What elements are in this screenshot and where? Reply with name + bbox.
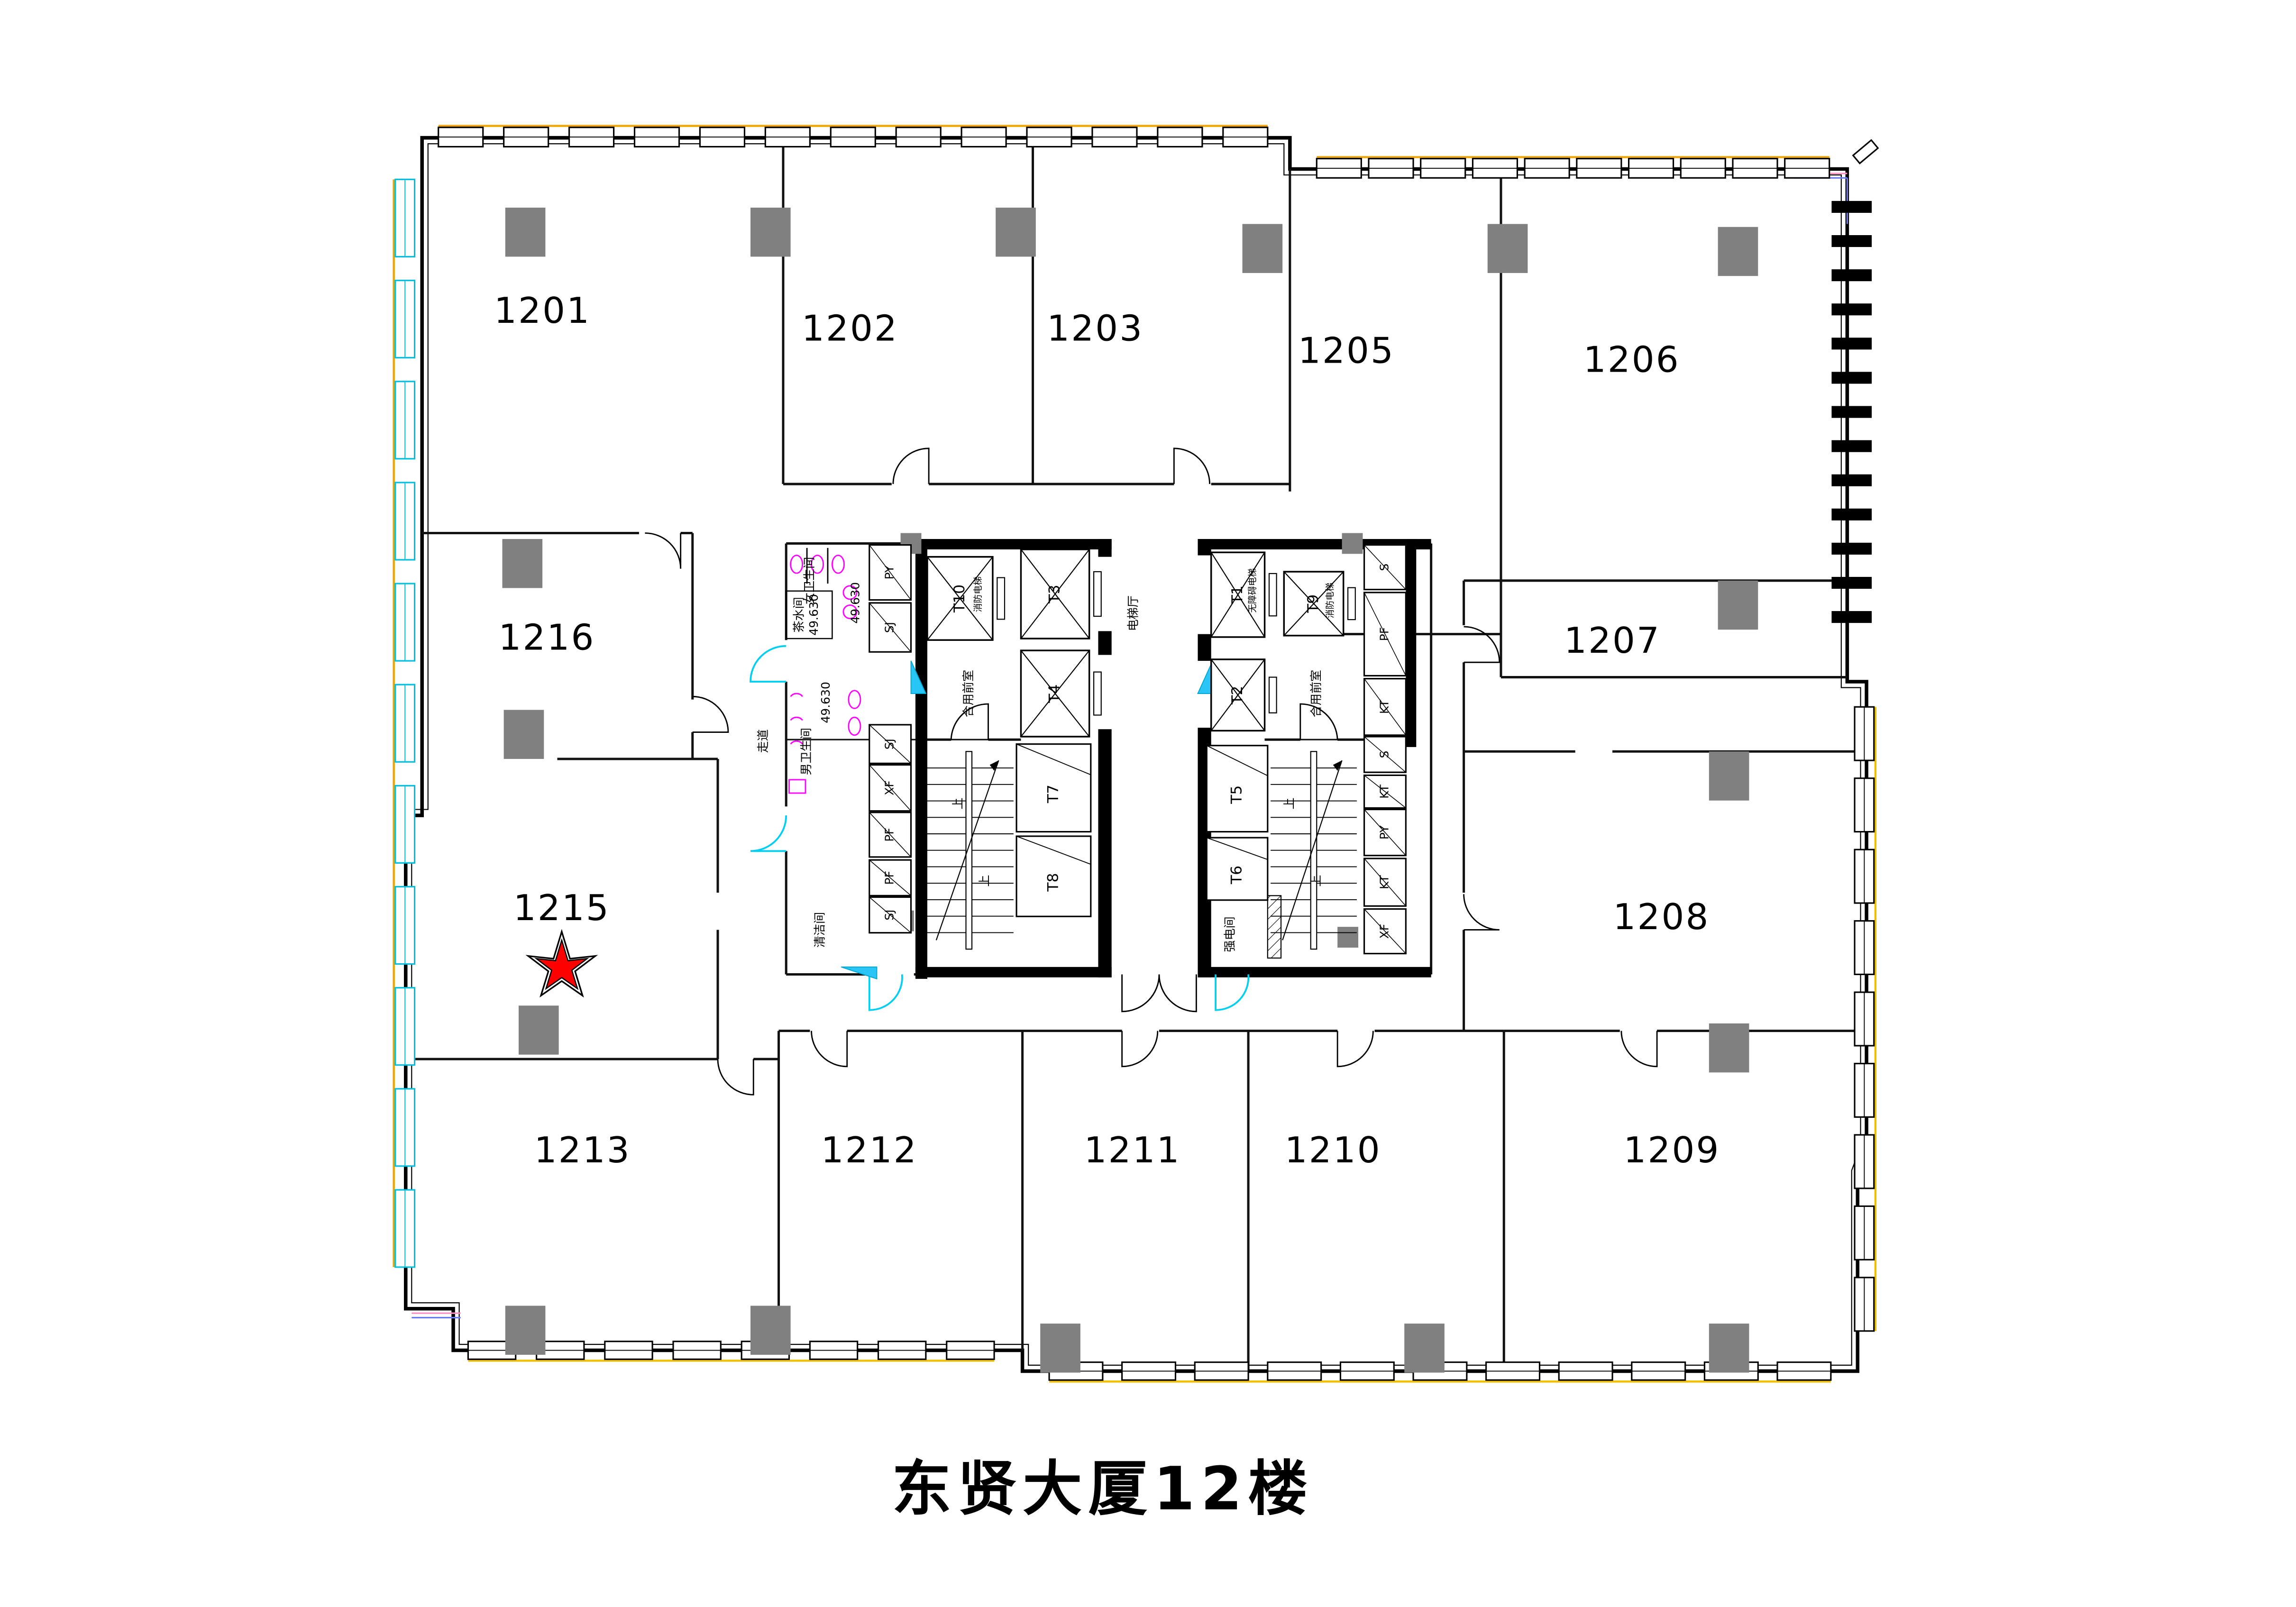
plan-text: 走道 <box>756 729 770 753</box>
shaft-KT: KT <box>1364 858 1406 906</box>
plan-text: 上 <box>1309 875 1323 886</box>
structural-column <box>996 208 1036 256</box>
plan-text: 茶水间 <box>792 597 805 632</box>
plan-text: 清洁间 <box>813 912 826 948</box>
shaft-label: PF <box>883 871 896 885</box>
window-icon <box>1832 270 1871 281</box>
plan-text: 49.630 <box>819 682 832 723</box>
elevator-T1: T1无障碍电梯 <box>1211 552 1277 637</box>
structural-column <box>750 208 791 256</box>
door-1212 <box>812 1031 847 1067</box>
window-icon <box>1832 441 1871 451</box>
floor-plan-canvas: PYSJSJXFPFPFSJSPFKTSKTPYKTXF T10消防电梯T3T4… <box>0 0 2296 1607</box>
structural-column <box>1040 1324 1080 1372</box>
shaft-label: PF <box>883 828 896 842</box>
door-1203 <box>1174 448 1209 484</box>
door-1209 <box>1621 1031 1657 1067</box>
room-label-1206: 1206 <box>1583 339 1680 381</box>
window-icon <box>1832 304 1871 315</box>
shaft-PY: PY <box>869 545 911 600</box>
room-label-1215: 1215 <box>513 887 610 929</box>
room-label-1201: 1201 <box>494 290 591 331</box>
window-icon <box>1832 338 1871 349</box>
room-label-1203: 1203 <box>1047 308 1143 349</box>
plan-text: 强电间 <box>1223 916 1236 952</box>
structural-column <box>1488 224 1528 273</box>
counterweight <box>1269 574 1277 616</box>
room-label-1208: 1208 <box>1613 896 1710 938</box>
door-hall-right-leaf <box>1159 974 1196 1011</box>
plan-text: 上 <box>978 875 991 886</box>
shaft-label: PY <box>883 565 896 580</box>
structural-column <box>1243 224 1283 273</box>
shaft-label: PF <box>1377 627 1391 641</box>
urinal-icon <box>791 694 803 696</box>
elevator-note: 消防电梯 <box>1325 583 1336 618</box>
door-1216 <box>645 533 680 568</box>
stair-rail <box>966 751 972 949</box>
structural-column <box>505 208 546 256</box>
structural-column <box>1342 533 1363 554</box>
shaft-label: KT <box>1377 875 1391 889</box>
elevator-note: 消防电梯 <box>973 576 983 612</box>
structural-column <box>519 1005 559 1054</box>
door-corridor-1216 <box>693 696 728 732</box>
shaft-label: XF <box>883 780 896 795</box>
shaft-SJ: SJ <box>869 897 911 932</box>
shaft-KT: KT <box>1364 679 1406 735</box>
shaft-label: PY <box>1377 825 1391 840</box>
door-wc-women <box>750 646 786 682</box>
plan-text: 49.630 <box>849 582 862 624</box>
room-label-1212: 1212 <box>821 1129 918 1171</box>
shaft-S: S <box>1364 737 1406 772</box>
elevator-label: T2 <box>1229 686 1246 705</box>
elevator-T4: T4 <box>1021 650 1101 737</box>
structural-column <box>1337 927 1358 948</box>
stairwell-treads <box>1271 751 1357 949</box>
plan-text: 合用前室 <box>1309 670 1323 717</box>
room-label-1205: 1205 <box>1298 330 1395 372</box>
door-core-right-south <box>1216 974 1248 1010</box>
structural-column <box>1709 751 1749 800</box>
north-marker <box>1853 140 1878 164</box>
elevator-T2: T2 <box>1211 659 1277 730</box>
room-label-1210: 1210 <box>1285 1129 1381 1171</box>
elevator-label: T9 <box>1305 594 1322 613</box>
mop-sink-icon <box>789 780 805 793</box>
counterweight <box>1094 672 1101 715</box>
counterweight <box>1348 588 1355 620</box>
room-label-1209: 1209 <box>1623 1129 1720 1171</box>
structural-column <box>1709 1324 1749 1372</box>
shaft-label: S <box>1377 751 1391 758</box>
door-core-left-south <box>869 974 902 1010</box>
column-layer <box>503 208 1758 1373</box>
star-marker <box>528 931 595 995</box>
elevator-T10: T10消防电梯 <box>927 557 1005 640</box>
shaft-SJ: SJ <box>869 603 911 652</box>
toilet-icon <box>849 691 860 709</box>
toilet-icon <box>791 556 803 574</box>
structural-column <box>1404 1324 1445 1372</box>
window-icon <box>1832 612 1871 622</box>
stair-label: T6 <box>1228 866 1245 885</box>
door-1213 <box>718 1059 753 1095</box>
doors-black <box>645 448 1657 1095</box>
east-band <box>1855 707 1875 1331</box>
window-icon <box>1832 543 1871 554</box>
door-1207 <box>1464 627 1500 662</box>
shaft-PF: PF <box>1364 593 1406 676</box>
stair-T7: T7 <box>1016 744 1091 832</box>
elevator-T9: T9消防电梯 <box>1284 572 1355 636</box>
window-icon <box>1832 407 1871 417</box>
shaft-label: KT <box>1377 700 1391 714</box>
door-1208 <box>1464 894 1500 930</box>
door-1211 <box>1122 1031 1158 1067</box>
window-icon <box>1832 201 1871 212</box>
window-icon <box>1832 373 1871 383</box>
window-icon <box>1832 236 1871 247</box>
room-label-1202: 1202 <box>802 308 898 349</box>
shaft-XF: XF <box>1364 909 1406 954</box>
stair-label: T5 <box>1228 785 1245 804</box>
shaft-label: SJ <box>883 909 896 920</box>
shaft-label: KT <box>1377 784 1391 798</box>
stair-rail <box>1311 751 1317 949</box>
stair-layer: T7T8T5T6 <box>924 744 1357 950</box>
door-wc-men <box>750 815 786 851</box>
elevator-note: 无障碍电梯 <box>1247 568 1258 613</box>
plan-text: 上 <box>951 797 965 809</box>
door-1210 <box>1337 1031 1373 1067</box>
room-label-1213: 1213 <box>534 1129 631 1171</box>
shaft-label: XF <box>1377 924 1391 939</box>
door-hall-left-leaf <box>1122 974 1159 1011</box>
stair-T8: T8 <box>1016 836 1091 916</box>
structural-column <box>505 1306 546 1355</box>
structural-column <box>1718 227 1758 276</box>
window-icon <box>1832 578 1871 588</box>
plan-text: 电梯厅 <box>1126 595 1140 631</box>
structural-column <box>504 710 544 759</box>
counterweight <box>997 578 1005 620</box>
counterweight <box>1269 677 1277 713</box>
floor-title: 东贤大厦12楼 <box>892 1454 1313 1524</box>
stair-label: T8 <box>1044 873 1061 892</box>
room-label-1211: 1211 <box>1084 1129 1181 1171</box>
stairwell-treads <box>924 751 1014 949</box>
door-1202 <box>893 448 929 484</box>
elevator-label: T10 <box>951 584 968 613</box>
counterweight <box>1094 572 1101 616</box>
shaft-S: S <box>1364 545 1406 590</box>
stair-T5: T5 <box>1207 746 1268 832</box>
stair-label: T7 <box>1044 785 1061 803</box>
east-ticks <box>1832 201 1871 622</box>
elevator-label: T1 <box>1229 585 1246 604</box>
shaft-label: SJ <box>883 622 896 633</box>
elevator-label: T3 <box>1046 584 1063 603</box>
window-icon <box>1832 475 1871 485</box>
shaft-SJ: SJ <box>869 725 911 764</box>
shaft-KT: KT <box>1364 775 1406 808</box>
plan-text: 49.630 <box>807 594 821 636</box>
stair-T6: T6 <box>1207 838 1268 900</box>
room-label-1207: 1207 <box>1564 620 1661 661</box>
shaft-PF: PF <box>869 860 911 895</box>
structural-column <box>750 1306 791 1355</box>
west-band <box>394 179 415 1267</box>
shaft-label: S <box>1377 564 1391 571</box>
shaft-XF: XF <box>869 765 911 811</box>
hatched-wall <box>1268 895 1281 958</box>
window-icon <box>1832 509 1871 520</box>
structural-column <box>1709 1023 1749 1072</box>
shaft-PF: PF <box>869 813 911 857</box>
shaft-label: SJ <box>883 739 896 749</box>
shaft-PY: PY <box>1364 810 1406 856</box>
plan-text: 合用前室 <box>961 670 975 717</box>
elevator-label: T4 <box>1046 684 1063 703</box>
hydrant-icon <box>841 967 877 979</box>
urinal-icon <box>791 717 803 720</box>
structural-column <box>1718 581 1758 630</box>
toilet-icon <box>849 717 860 735</box>
toilet-icon <box>832 556 844 574</box>
elevator-T3: T3 <box>1021 549 1101 639</box>
plan-text: 上 <box>1282 797 1296 809</box>
plan-text: 男卫生间 <box>799 728 813 775</box>
room-label-1216: 1216 <box>499 617 595 658</box>
elevator-layer: T10消防电梯T3T4T1无障碍电梯T2T9消防电梯 <box>927 549 1355 737</box>
structural-column <box>503 539 543 588</box>
